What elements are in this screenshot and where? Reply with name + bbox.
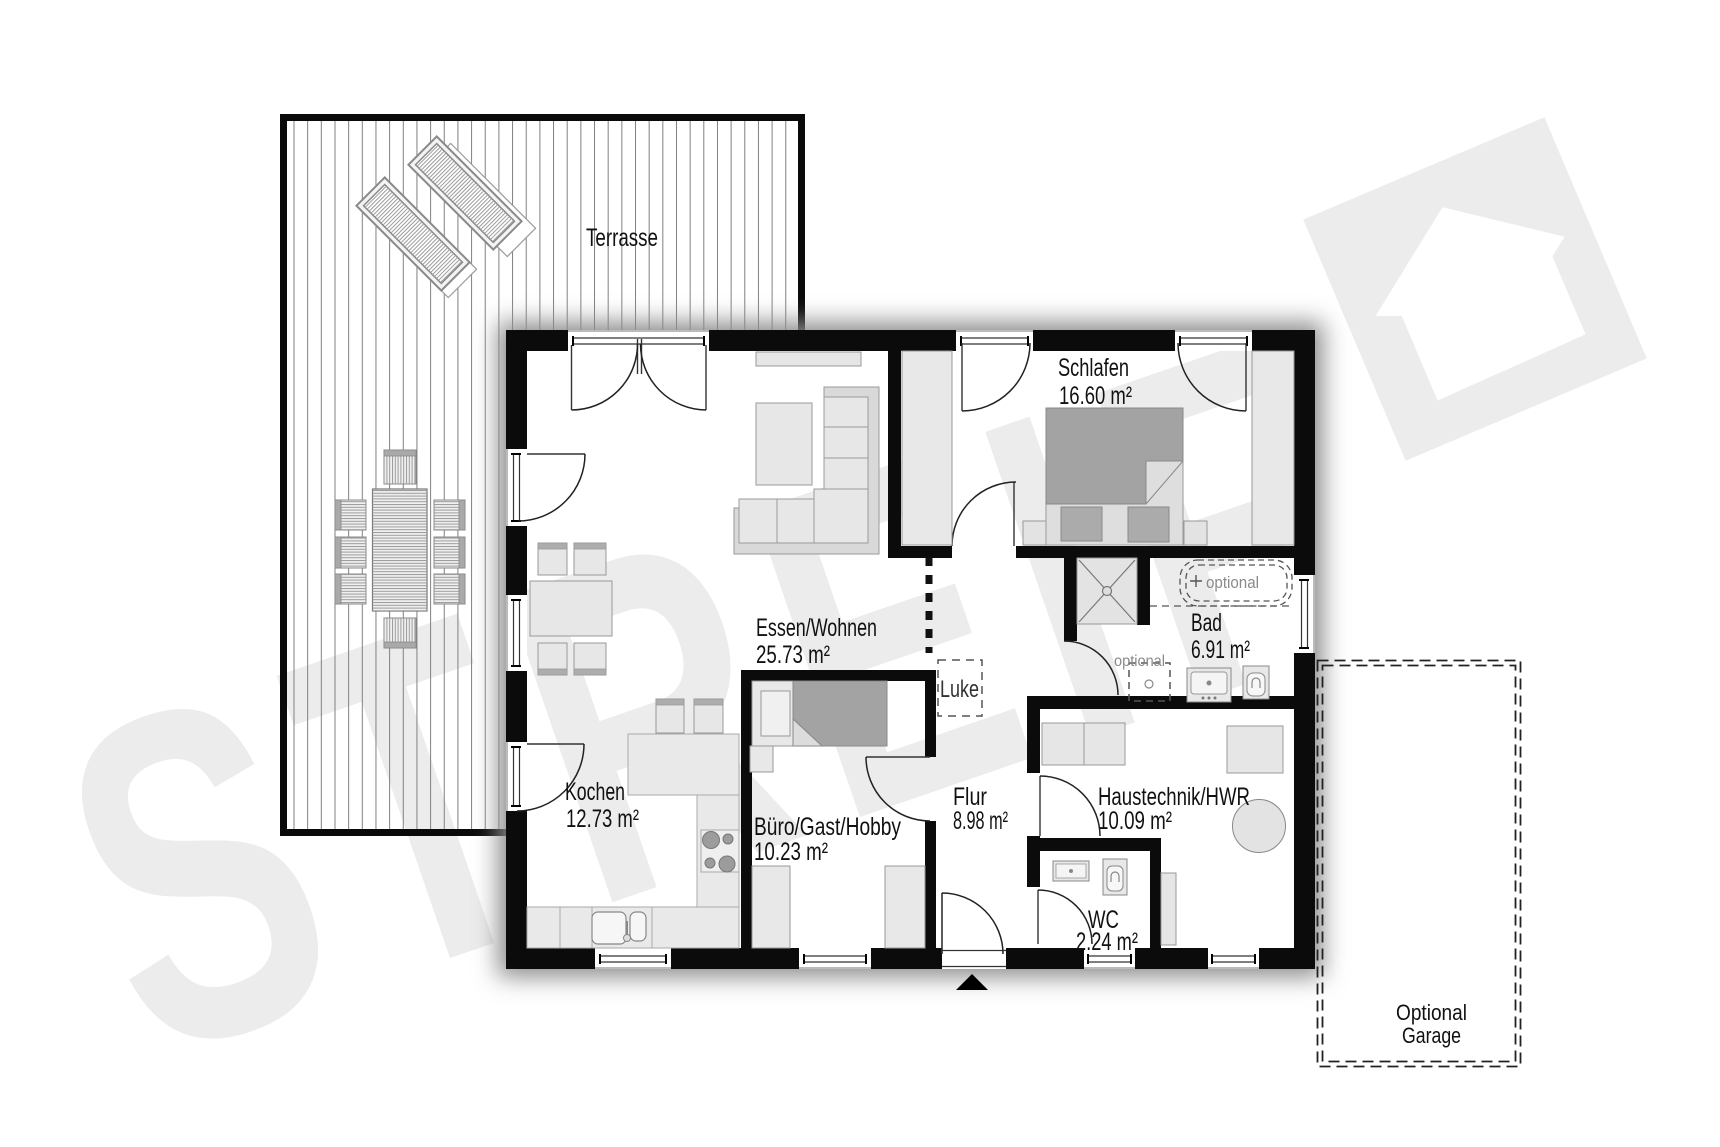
- svg-text:Garage: Garage: [1402, 1023, 1461, 1048]
- svg-text:Bad: Bad: [1191, 609, 1222, 637]
- svg-text:Optional: Optional: [1396, 1000, 1467, 1025]
- svg-text:25.73 m²: 25.73 m²: [756, 641, 830, 669]
- svg-text:Terrasse: Terrasse: [586, 224, 658, 252]
- svg-text:Essen/Wohnen: Essen/Wohnen: [756, 614, 877, 642]
- svg-text:16.60 m²: 16.60 m²: [1059, 382, 1132, 410]
- svg-text:Kochen: Kochen: [565, 778, 625, 806]
- svg-text:12.73 m²: 12.73 m²: [566, 805, 639, 833]
- svg-text:Luke: Luke: [940, 676, 979, 703]
- svg-text:Schlafen: Schlafen: [1058, 354, 1129, 382]
- svg-text:optional: optional: [1206, 573, 1259, 592]
- svg-text:10.09 m²: 10.09 m²: [1098, 807, 1172, 835]
- svg-text:6.91 m²: 6.91 m²: [1191, 636, 1250, 664]
- svg-text:8.98 m²: 8.98 m²: [953, 807, 1008, 835]
- svg-text:optional: optional: [1114, 653, 1165, 670]
- svg-text:2.24 m²: 2.24 m²: [1076, 928, 1138, 956]
- svg-text:Büro/Gast/Hobby: Büro/Gast/Hobby: [754, 813, 901, 841]
- svg-text:10.23 m²: 10.23 m²: [754, 838, 828, 866]
